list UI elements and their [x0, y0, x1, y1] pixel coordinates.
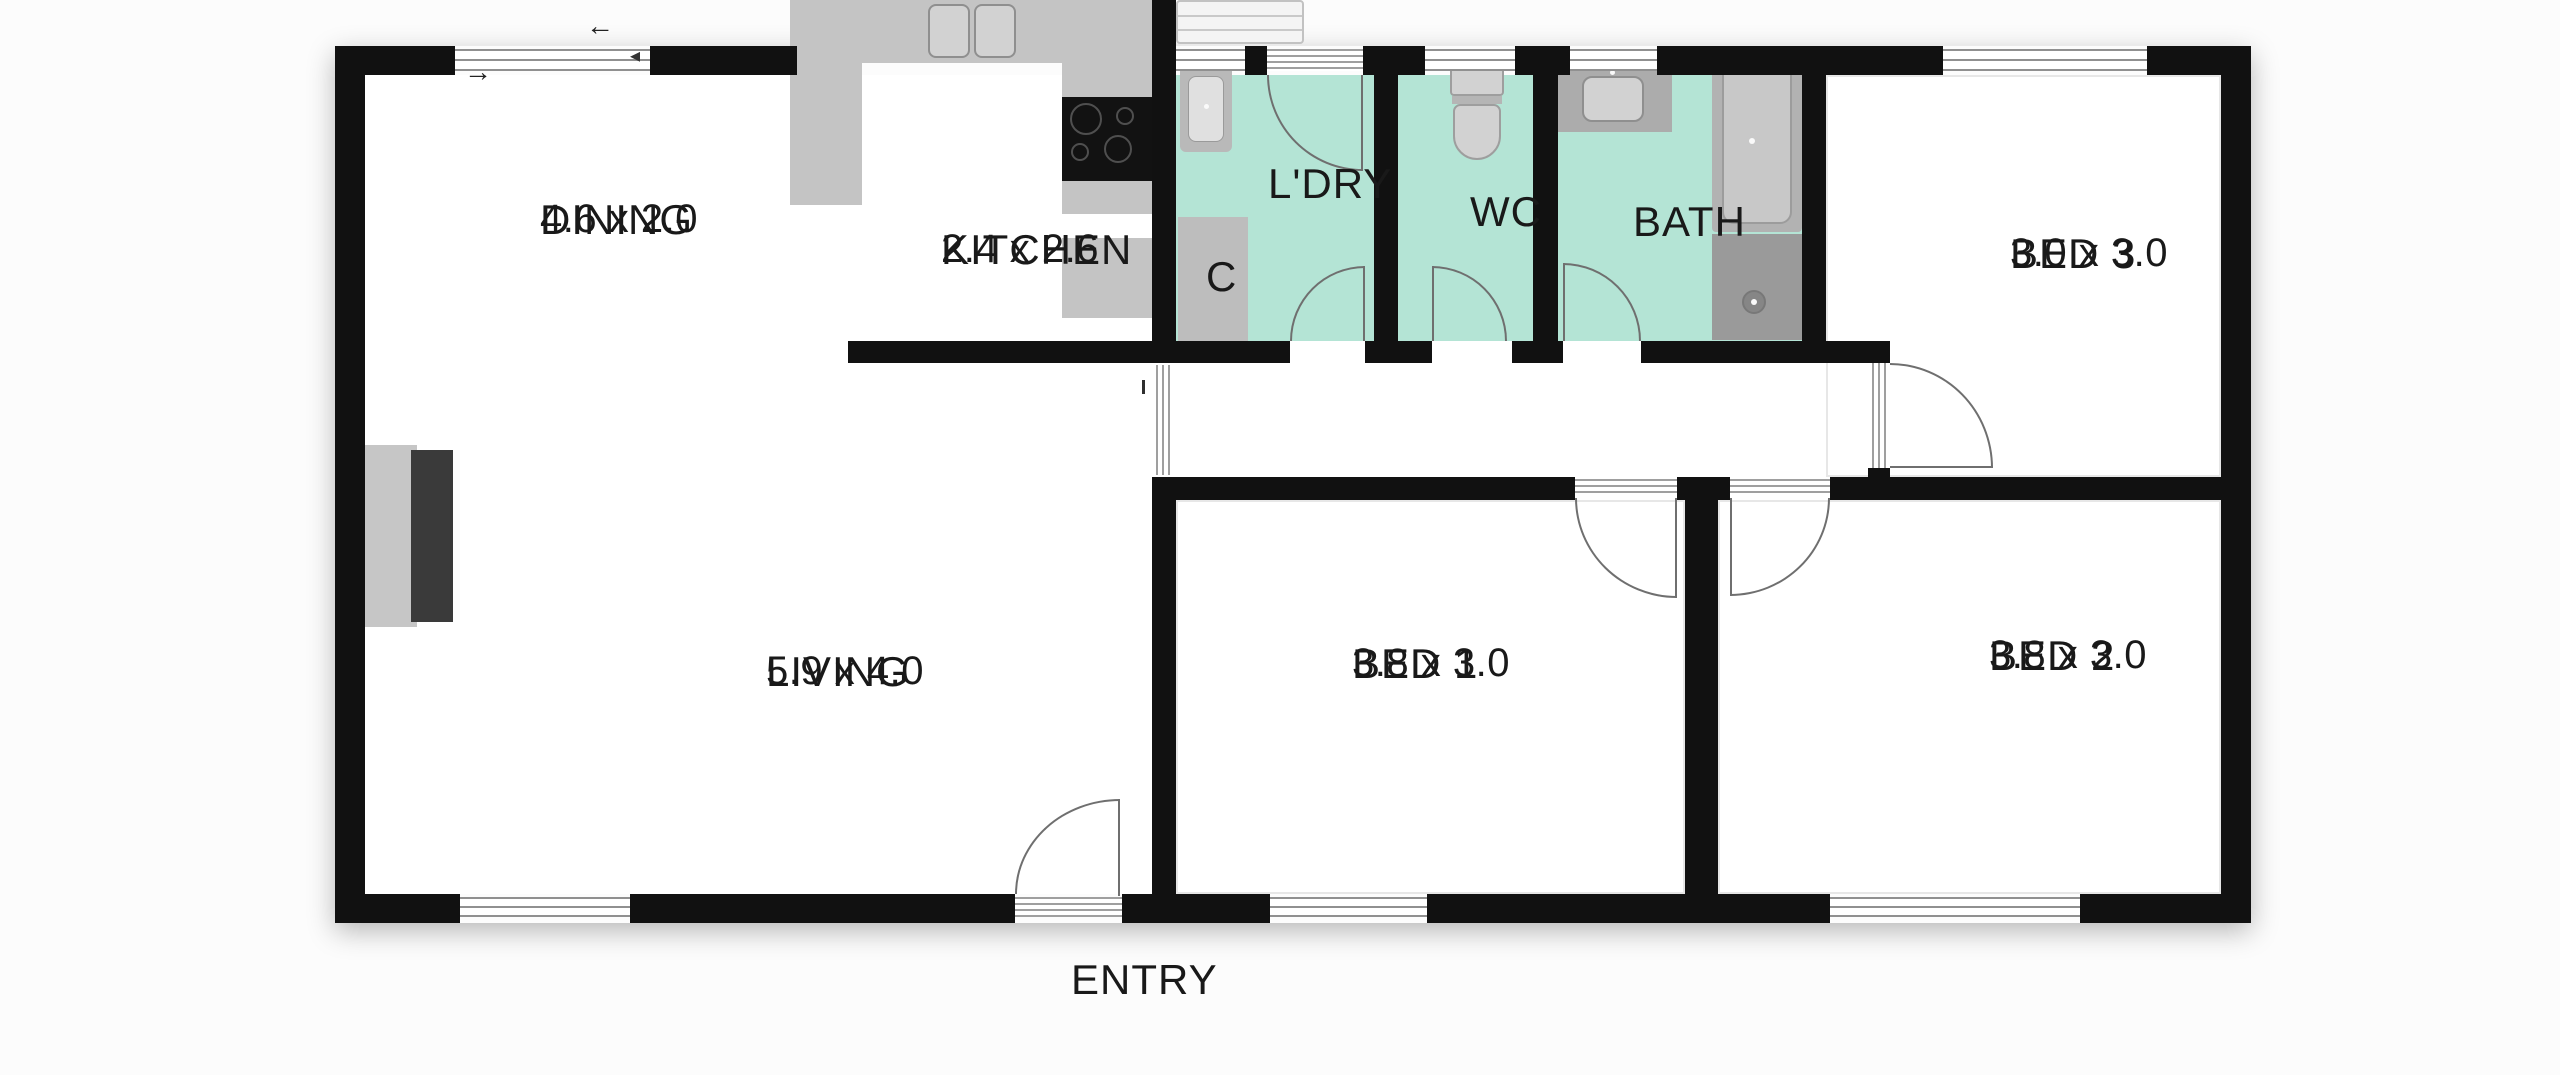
- room-dims: 4.6 x 2.0: [540, 196, 698, 243]
- bed2-door-leaf: [1730, 498, 1732, 596]
- burner-icon: [1104, 135, 1132, 163]
- window-bed2: [1830, 897, 2080, 917]
- shower-icon: [1712, 234, 1802, 340]
- wall-bottom-3: [1122, 894, 1270, 923]
- bed3-door-leaf: [1890, 466, 1993, 468]
- vanity-basin-icon: [1582, 76, 1644, 122]
- wall-bed3-door-jamb: [1868, 468, 1890, 477]
- wc-door-leaf: [1432, 266, 1434, 341]
- kitchen-bench-left: [790, 0, 862, 205]
- cooktop-icon: [1062, 97, 1152, 181]
- window-living: [460, 897, 630, 917]
- laundry-back-door-leaf: [1361, 75, 1363, 171]
- slide-arrow-left-icon: ←: [586, 12, 614, 40]
- slide-arrow-right-icon: →: [464, 58, 492, 86]
- window-bed1: [1270, 897, 1427, 917]
- bed3-door-track: [1872, 363, 1890, 468]
- sash-arrow-icon: ◂: [630, 46, 640, 66]
- bed1-door-leaf: [1675, 498, 1677, 598]
- wall-bottom-2: [630, 894, 1015, 923]
- wall-top-1: [335, 46, 455, 75]
- laundry-trough-icon: [1180, 66, 1232, 152]
- wall-top-3: [1245, 46, 1267, 75]
- wall-hall-bottom-a: [1152, 477, 1575, 500]
- room-name: ENTRY: [1071, 956, 1218, 1003]
- wall-top-2: [650, 46, 797, 75]
- room-name: C: [1206, 253, 1237, 300]
- window-bed3: [1943, 49, 2147, 71]
- door-stop-mark: [1142, 380, 1145, 394]
- wall-top-5: [1515, 46, 1570, 75]
- bed2-door-track: [1730, 479, 1830, 497]
- kitchen-sink-left-icon: [928, 4, 970, 58]
- toilet-icon: [1450, 66, 1504, 160]
- wall-hall-top-c: [1512, 341, 1563, 363]
- burner-icon: [1116, 107, 1134, 125]
- room-dims: 5.9 x 4.0: [766, 648, 924, 695]
- window-laundry: [1176, 49, 1245, 71]
- room-dims: 3.8 x 3.0: [1352, 640, 1510, 687]
- wall-laundry-wc: [1374, 75, 1398, 363]
- wall-hall-top-a: [848, 341, 1290, 363]
- room-dims: 3.0 x 3.0: [2010, 230, 2168, 277]
- wall-hall-top-d: [1641, 341, 1890, 363]
- entry-door-track: [1015, 897, 1122, 917]
- wall-hall-top-b: [1365, 341, 1432, 363]
- wall-bath-bed3: [1802, 46, 1826, 363]
- wall-living-bed1: [1152, 477, 1176, 923]
- window-bath: [1570, 49, 1657, 71]
- room-name: L'DRY: [1268, 160, 1392, 207]
- wall-right: [2221, 46, 2251, 923]
- steps-icon: [1176, 0, 1304, 44]
- kitchen-bench-right-mid: [1062, 181, 1152, 214]
- wall-left: [335, 46, 365, 923]
- room-dims: 2.4 x 2.6: [941, 226, 1099, 273]
- kitchen-sink-right-icon: [974, 4, 1016, 58]
- room-name: BATH: [1633, 198, 1746, 245]
- entry-door-leaf: [1118, 799, 1120, 896]
- laundry-back-door-track: [1267, 49, 1363, 71]
- floor-plan: ← → ◂ DINING 4.6 x 2.0 KITCHEN 2.4 x 2.6…: [0, 0, 2560, 1075]
- wall-bed1-bed2: [1685, 477, 1718, 923]
- wall-top-6: [1657, 46, 1943, 75]
- wall-bottom-4: [1427, 894, 1830, 923]
- burner-icon: [1070, 103, 1102, 135]
- wall-kitchen-laundry: [1152, 0, 1176, 363]
- bed1-door-track: [1575, 479, 1677, 497]
- hall-slider-track: [1156, 365, 1174, 475]
- wall-top-4: [1363, 46, 1425, 75]
- wall-bottom-1: [335, 894, 460, 923]
- wall-bottom-5: [2080, 894, 2251, 923]
- room-dims: 3.8 x 3.0: [1989, 632, 2147, 679]
- bath-door-leaf: [1563, 263, 1565, 341]
- window-wc: [1425, 49, 1515, 71]
- laundry-hall-door-leaf: [1363, 266, 1365, 341]
- wall-hall-bottom-c: [1830, 477, 2222, 500]
- kitchen-bench-right-upper: [1062, 0, 1152, 97]
- fireplace-insert: [411, 450, 453, 622]
- burner-icon: [1071, 143, 1089, 161]
- room-name: WC: [1470, 188, 1542, 235]
